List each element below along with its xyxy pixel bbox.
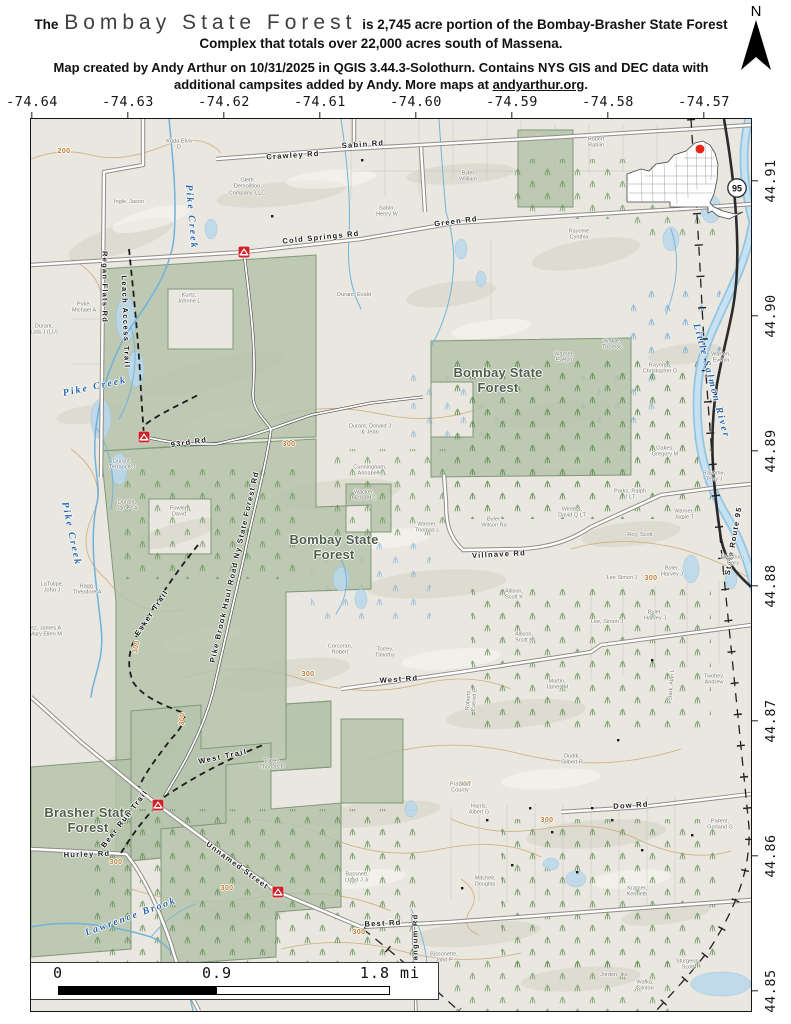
latitude-tick (751, 450, 758, 451)
latitude-tick (751, 585, 758, 586)
contour-label: 300 (178, 712, 187, 726)
parcel-label: Lee Simon J (606, 575, 637, 581)
parcel-label: Stark, Alan L (667, 669, 676, 701)
road-label: Pike Brook Haul Road Ny State Forest Rd (209, 470, 262, 663)
longitude-label: -74.58 (582, 94, 634, 110)
parcel-label: Winters, David Q LT (558, 507, 586, 520)
campsite-marker (273, 887, 284, 898)
parcel-label: Rayome, Christopher O (643, 363, 678, 376)
longitude-label: -74.60 (390, 94, 442, 110)
title-prefix: The (34, 17, 58, 32)
map-title-line2: Complex that totals over 22,000 acres so… (0, 36, 762, 53)
parcel-label: Cunningham, Annabelle (353, 465, 386, 478)
parcel-label: Corcoran, Robert (328, 644, 353, 657)
parcel-label: Warner, Thomas L (415, 522, 440, 535)
latitude-label: 44.86 (763, 834, 779, 877)
contour-label: 300 (221, 885, 234, 893)
trail-label: Esker Trail (133, 588, 170, 637)
scale-start: 0 (53, 964, 63, 982)
parcel-label: Hagg, Theodore A (73, 584, 102, 597)
forest-label: Bombay State Forest (289, 533, 378, 563)
road-label: Green Rd (434, 215, 479, 229)
parcel-label: Durant, Evald (337, 292, 371, 298)
contour-label: 200 (58, 148, 71, 156)
latitude-tick (751, 315, 758, 316)
parcel-label: Fowler, David (170, 506, 188, 519)
parcel-label: Franklin County (450, 782, 470, 795)
andyarthur-link[interactable]: andyarthur.org (493, 77, 585, 92)
parcel-label: Warren, Evelyn (711, 352, 731, 365)
longitude-label: -74.59 (486, 94, 538, 110)
parcel-label: Durant, Donald J & Jean (349, 424, 391, 437)
latitude-label: 44.91 (763, 159, 779, 202)
parcel-label: Ingle, Jason (114, 199, 144, 205)
parcel-label: LaTulipe, John J (41, 582, 64, 595)
campsite-marker (153, 800, 164, 811)
road-label: 93rd Rd (170, 436, 208, 450)
contour-label: 300 (132, 640, 142, 654)
parcel-label: Durant, Terrance J (109, 459, 135, 472)
parcel-label: Monahan, Gary (721, 555, 746, 568)
parcel-label: Wakle, Thomas (602, 339, 622, 352)
parcel-label: Byler, Harvey J (661, 566, 683, 579)
parcel-label: Lee, Simon J (591, 619, 624, 625)
parcel-label: Twohey, Andrew (704, 674, 724, 687)
parcel-label: Kurtz, Johnne L (177, 293, 200, 306)
road-label: Cold Springs Rd (282, 230, 360, 247)
water-label: Pike Creek (62, 375, 128, 400)
map-credit: Map created by Andy Arthur on 10/31/2025… (0, 60, 762, 94)
credit-suffix: . (584, 77, 588, 92)
latitude-label: 44.90 (763, 294, 779, 337)
parcel-label: Gleth Demolition Company, LLC (229, 177, 266, 196)
trail-label: West Trail (198, 748, 248, 767)
contour-label: 300 (302, 671, 315, 679)
campsite-marker (239, 247, 250, 258)
parcel-label: Martin, James M (546, 679, 569, 692)
road-label: Best Rd (364, 919, 401, 930)
contour-label: 300 (353, 929, 366, 937)
road-label: Sabin Rd (341, 139, 384, 151)
parcel-label: Allison, Scott K (515, 632, 533, 645)
latitude-tick (751, 990, 758, 991)
tent-icon (153, 800, 164, 811)
credit-line1: Map created by Andy Arthur on 10/31/2025… (54, 60, 709, 75)
water-label: Lawrence Brook (84, 895, 179, 939)
forest-label: Bombay State Forest (453, 366, 542, 396)
parcel-label: Parks, Ralph J LT (614, 489, 646, 502)
latitude-label: 44.89 (763, 429, 779, 472)
longitude-label: -74.64 (6, 94, 58, 110)
parcel-label: Sabin, Henry W (376, 206, 398, 219)
parcel-label: Rayome, Terry J (703, 471, 725, 484)
scale-mid: 0.9 (202, 964, 232, 982)
parcel-label: Parent, Gorland G (707, 819, 733, 832)
parcel-label: Allison, Scott K (505, 589, 523, 602)
latitude-label: 44.85 (763, 969, 779, 1012)
road-label: Dow Rd (613, 800, 649, 811)
water-label: Little Salmon River (690, 322, 732, 439)
parcel-label: Oakes, Gregory M (652, 446, 678, 459)
contour-label: 300 (645, 575, 658, 583)
parcel-label: Mitchell, Douglas (475, 876, 496, 889)
parcel-label: Bassnett, Lloyd J Jr (345, 872, 369, 885)
parcel-label: Byler, Wilson Ru (481, 517, 507, 530)
map-document: The Bombay State Forest is 2,745 acre po… (0, 0, 791, 1024)
parcel-label: Robert Rablin (588, 137, 605, 150)
contour-label: 300 (283, 441, 296, 449)
tent-icon (239, 247, 250, 258)
road-label: Unnamed Street (204, 840, 270, 891)
scale-bar-filled-segment (59, 987, 217, 994)
map-label-layer: Bombay State ForestBombay State ForestBr… (31, 119, 751, 1011)
latitude-label: 44.87 (763, 699, 779, 742)
road-label: West Rd (379, 674, 418, 685)
longitude-label: -74.62 (198, 94, 250, 110)
contour-label: 300 (110, 859, 123, 867)
parcel-label: Byler, Harvey J (644, 610, 666, 623)
scale-end: 1.8 mi (360, 964, 420, 982)
road-label: Wangum Rd (412, 914, 421, 969)
parcel-label: Warner, Jamie T (674, 509, 694, 522)
longitude-label: -74.63 (102, 94, 154, 110)
parcel-label: Kramer, Kenneth (627, 886, 648, 899)
parcel-label: Torrey, Timothy (375, 647, 395, 660)
parcel-label: Rayome Cynthia (569, 229, 590, 242)
longitude-label: -74.57 (678, 94, 730, 110)
contour-label: 300 (541, 817, 554, 825)
parcel-label: Torrey, Thomas P (259, 759, 285, 772)
parcel-label: Durant, James A (116, 500, 137, 513)
parcel-label: Byler William (459, 171, 477, 184)
parcel-label: Wacker, Michael C (352, 490, 377, 503)
scale-bar-track (58, 986, 390, 995)
map-canvas: 95 Bombay State ForestBombay State Fores… (30, 118, 752, 1012)
campsite-marker (139, 432, 150, 443)
road-label: Crawley Rd (266, 150, 320, 162)
latitude-tick (751, 180, 758, 181)
longitude-axis: -74.64-74.63-74.62-74.61-74.60-74.59-74.… (30, 94, 770, 120)
parcel-label: Roy, Scott (627, 532, 652, 538)
parcel-label: Durant, Lida J (LU) (30, 324, 57, 337)
parcel-label: Dudik, Gilbert R (561, 754, 583, 767)
latitude-tick (751, 720, 758, 721)
road-label: Hurley Rd (64, 850, 111, 860)
credit-line2: additional campsites added by Andy. More… (174, 77, 493, 92)
parcel-label: Wafka, Clinton (636, 980, 653, 993)
parcel-label: Roberts, Everett L (465, 688, 480, 711)
trail-label: Leach Access Trail (119, 275, 131, 369)
parcel-label: Pyke, Michael A (72, 302, 96, 315)
road-label: Villnave Rd (472, 549, 526, 560)
parcel-label: Sturgeon, Scott (676, 959, 700, 972)
map-header: The Bombay State Forest is 2,745 acre po… (0, 10, 762, 94)
latitude-tick (751, 855, 758, 856)
parcel-label: Warner, Evelyn (554, 352, 573, 365)
tent-icon (139, 432, 150, 443)
road-label: Regan Flats Rd (100, 251, 109, 323)
map-title: The Bombay State Forest is 2,745 acre po… (0, 10, 762, 36)
tent-icon (273, 887, 284, 898)
latitude-axis: 44.9144.9044.8944.8844.8744.8644.85 (750, 0, 791, 1024)
title-forest-name: Bombay State Forest (62, 11, 358, 34)
title-rest: is 2,745 acre portion of the Bombay-Bras… (362, 17, 727, 32)
water-label: Pike Creek (59, 501, 84, 567)
parcel-label: Kuda Elva D (166, 139, 192, 152)
longitude-label: -74.61 (294, 94, 346, 110)
scale-bar: 0 0.9 1.8 mi (30, 962, 439, 1000)
parcel-label: Jorden, Ike (600, 972, 628, 978)
latitude-label: 44.88 (763, 564, 779, 607)
parcel-label: Harris, Albert G (469, 804, 490, 817)
water-label: Pike Creek (182, 184, 199, 250)
parcel-label: Getz, James A & Mary Ellen M (30, 626, 62, 639)
